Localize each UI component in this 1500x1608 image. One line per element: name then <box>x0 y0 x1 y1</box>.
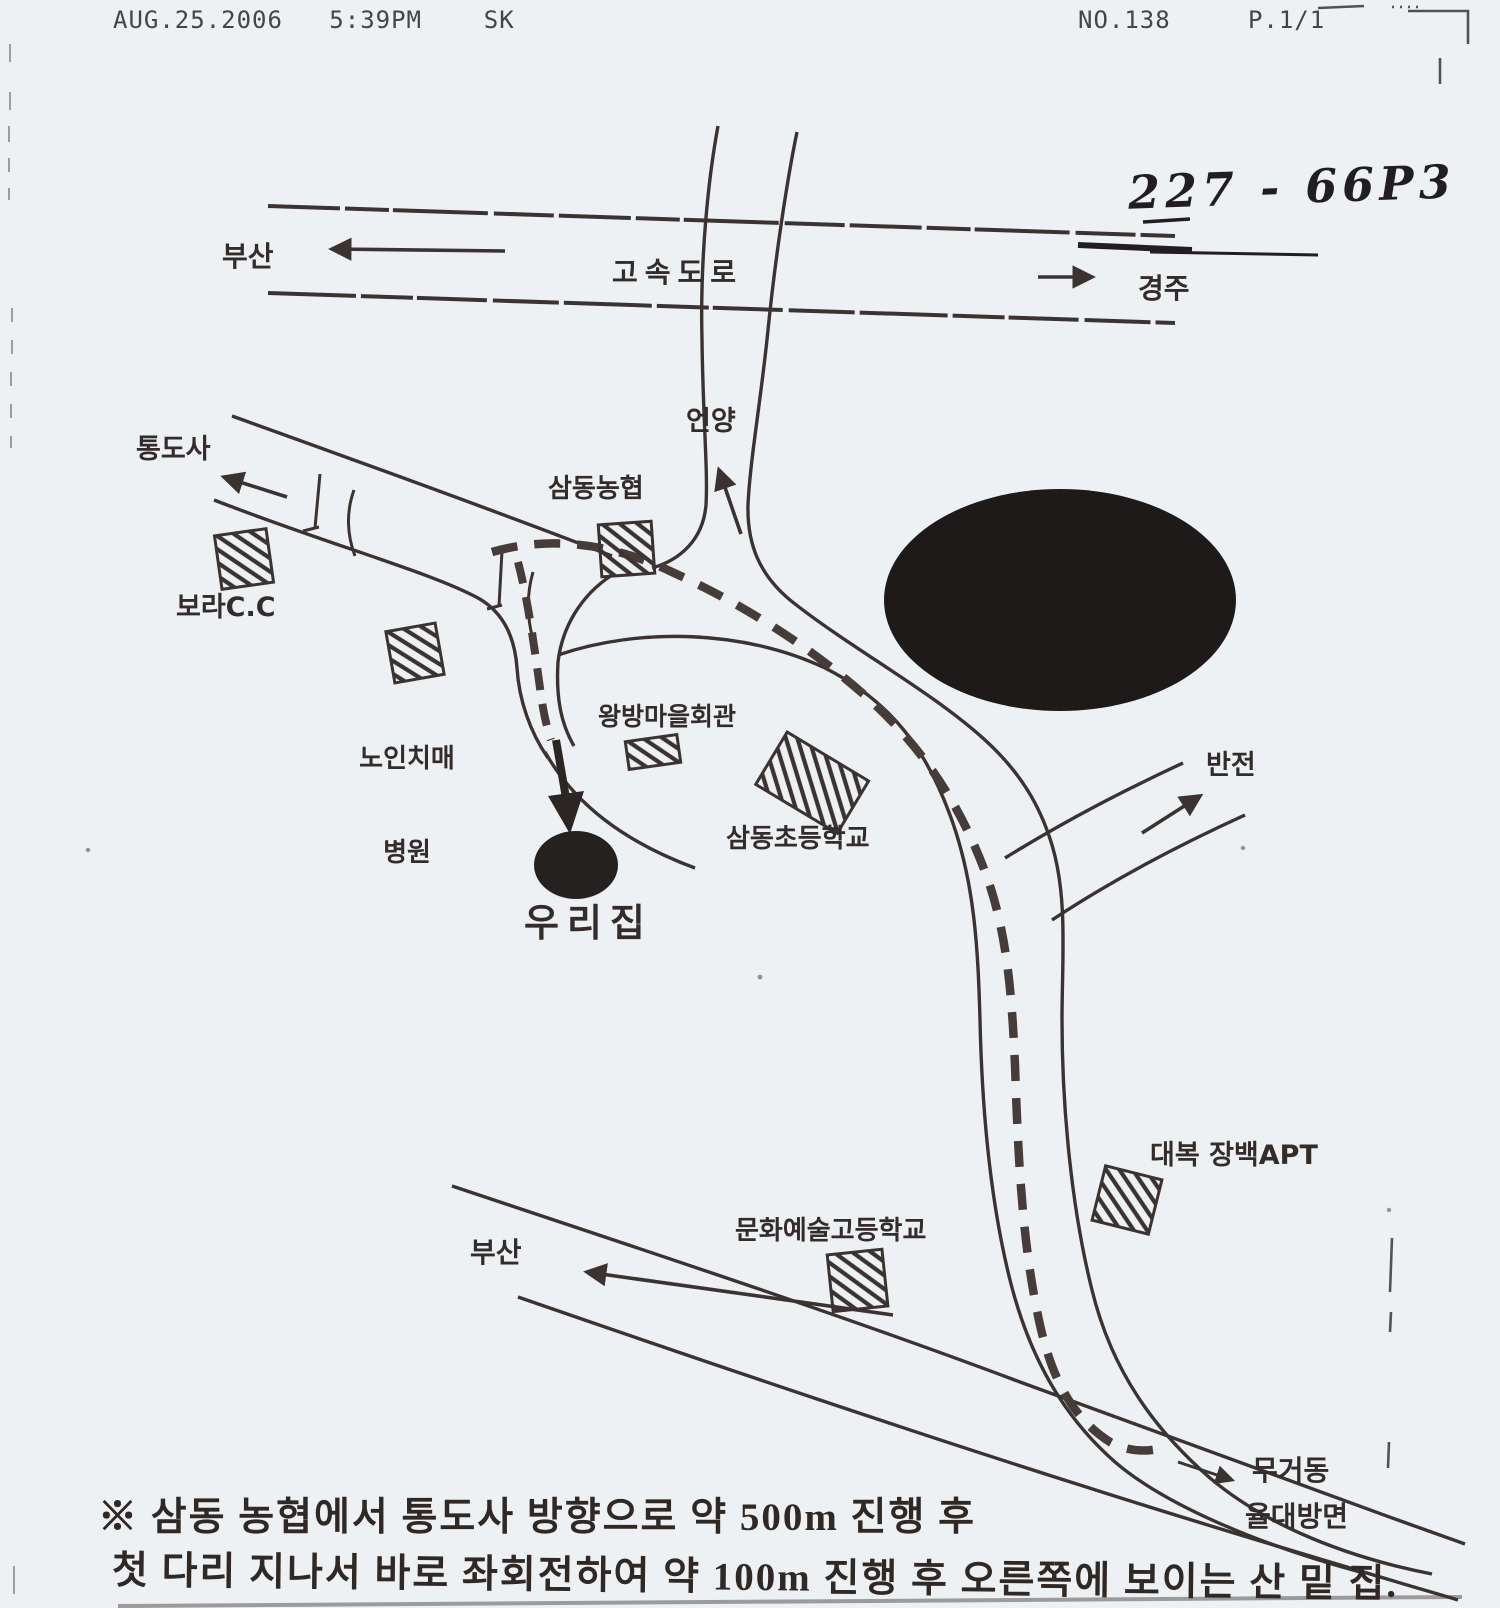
label-wangbang: 왕방마을회관 <box>598 702 736 732</box>
noin-hospital-box <box>386 623 444 683</box>
bridge-marks <box>303 474 535 646</box>
bancheon-arrow <box>1142 796 1200 833</box>
bancheon-fork <box>1005 763 1245 920</box>
munhwa-highschool-box <box>827 1249 888 1311</box>
tongdosa-arrow <box>224 477 287 497</box>
highway-bottom-line <box>268 293 1175 323</box>
fax-header-left: AUG.25.2006 5:39PM SK <box>113 6 515 34</box>
note-line1: ※ 삼동 농협에서 통도사 방향으로 약 500m 진행 후 <box>98 1486 976 1542</box>
scan-fold-marks <box>9 44 14 1594</box>
label-our-house: 우리집 <box>524 901 653 947</box>
highway-top-line <box>268 206 1175 236</box>
unyang-arrow <box>719 470 741 534</box>
fax-page: AUG.25.2006 5:39PM SK NO.138 P.1/1 227 -… <box>0 0 1500 1608</box>
corner-marks <box>1318 6 1468 1468</box>
label-unyang: 언양 <box>686 406 736 438</box>
house-arrow <box>548 740 584 834</box>
wangbang-hall-box <box>625 735 680 770</box>
blackout-ellipse <box>884 489 1236 711</box>
label-munhwa-highschool: 문화예술고등학교 <box>735 1216 926 1247</box>
unyang-road-left-line <box>652 126 718 568</box>
fax-header-right: NO.138 P.1/1 <box>1078 6 1325 34</box>
our-house-dot <box>534 831 618 899</box>
handwriting-strokes <box>1078 219 1318 255</box>
label-busan-top: 부산 <box>222 240 274 274</box>
samdong-nonghyup-box <box>598 521 654 577</box>
handwritten-number: 227 - 66P3 <box>1127 154 1456 219</box>
mugeodong-arrow <box>1178 1462 1232 1480</box>
label-samdong-nonghyup: 삼동농협 <box>548 474 644 505</box>
bridge-1-left-mark <box>303 474 320 531</box>
label-bancheon: 반전 <box>1206 750 1256 782</box>
label-bora-cc: 보라C.C <box>176 592 276 624</box>
bridge-2-left-mark <box>487 551 502 609</box>
label-yuldae: 율대방면 <box>1245 1500 1348 1534</box>
busan-top-arrow <box>332 249 505 251</box>
label-noin-hospital-line2: 병원 <box>342 838 472 869</box>
label-noin-hospital-line1: 노인치매 <box>342 744 472 775</box>
bora-cc-box <box>214 529 273 590</box>
bridge-1-right-mark <box>348 490 355 556</box>
label-noin-hospital: 노인치매 병원 <box>342 682 472 932</box>
label-daebok-apt: 대복 장백APT <box>1150 1140 1318 1172</box>
bancheon-branch-upper-line <box>1005 763 1183 858</box>
label-gyeongju: 경주 <box>1138 272 1190 306</box>
label-tongdosa: 통도사 <box>136 434 211 466</box>
label-mugeo-dong: 무거동 <box>1252 1454 1329 1488</box>
label-highway: 고속도로 <box>612 256 743 290</box>
label-busan-bottom: 부산 <box>470 1236 522 1270</box>
route-dashed-house-branch <box>518 562 551 740</box>
daebok-apt-box <box>1092 1166 1162 1234</box>
samdong-elementary-box <box>756 732 869 833</box>
label-samdong-elementary: 삼동초등학교 <box>726 824 870 855</box>
